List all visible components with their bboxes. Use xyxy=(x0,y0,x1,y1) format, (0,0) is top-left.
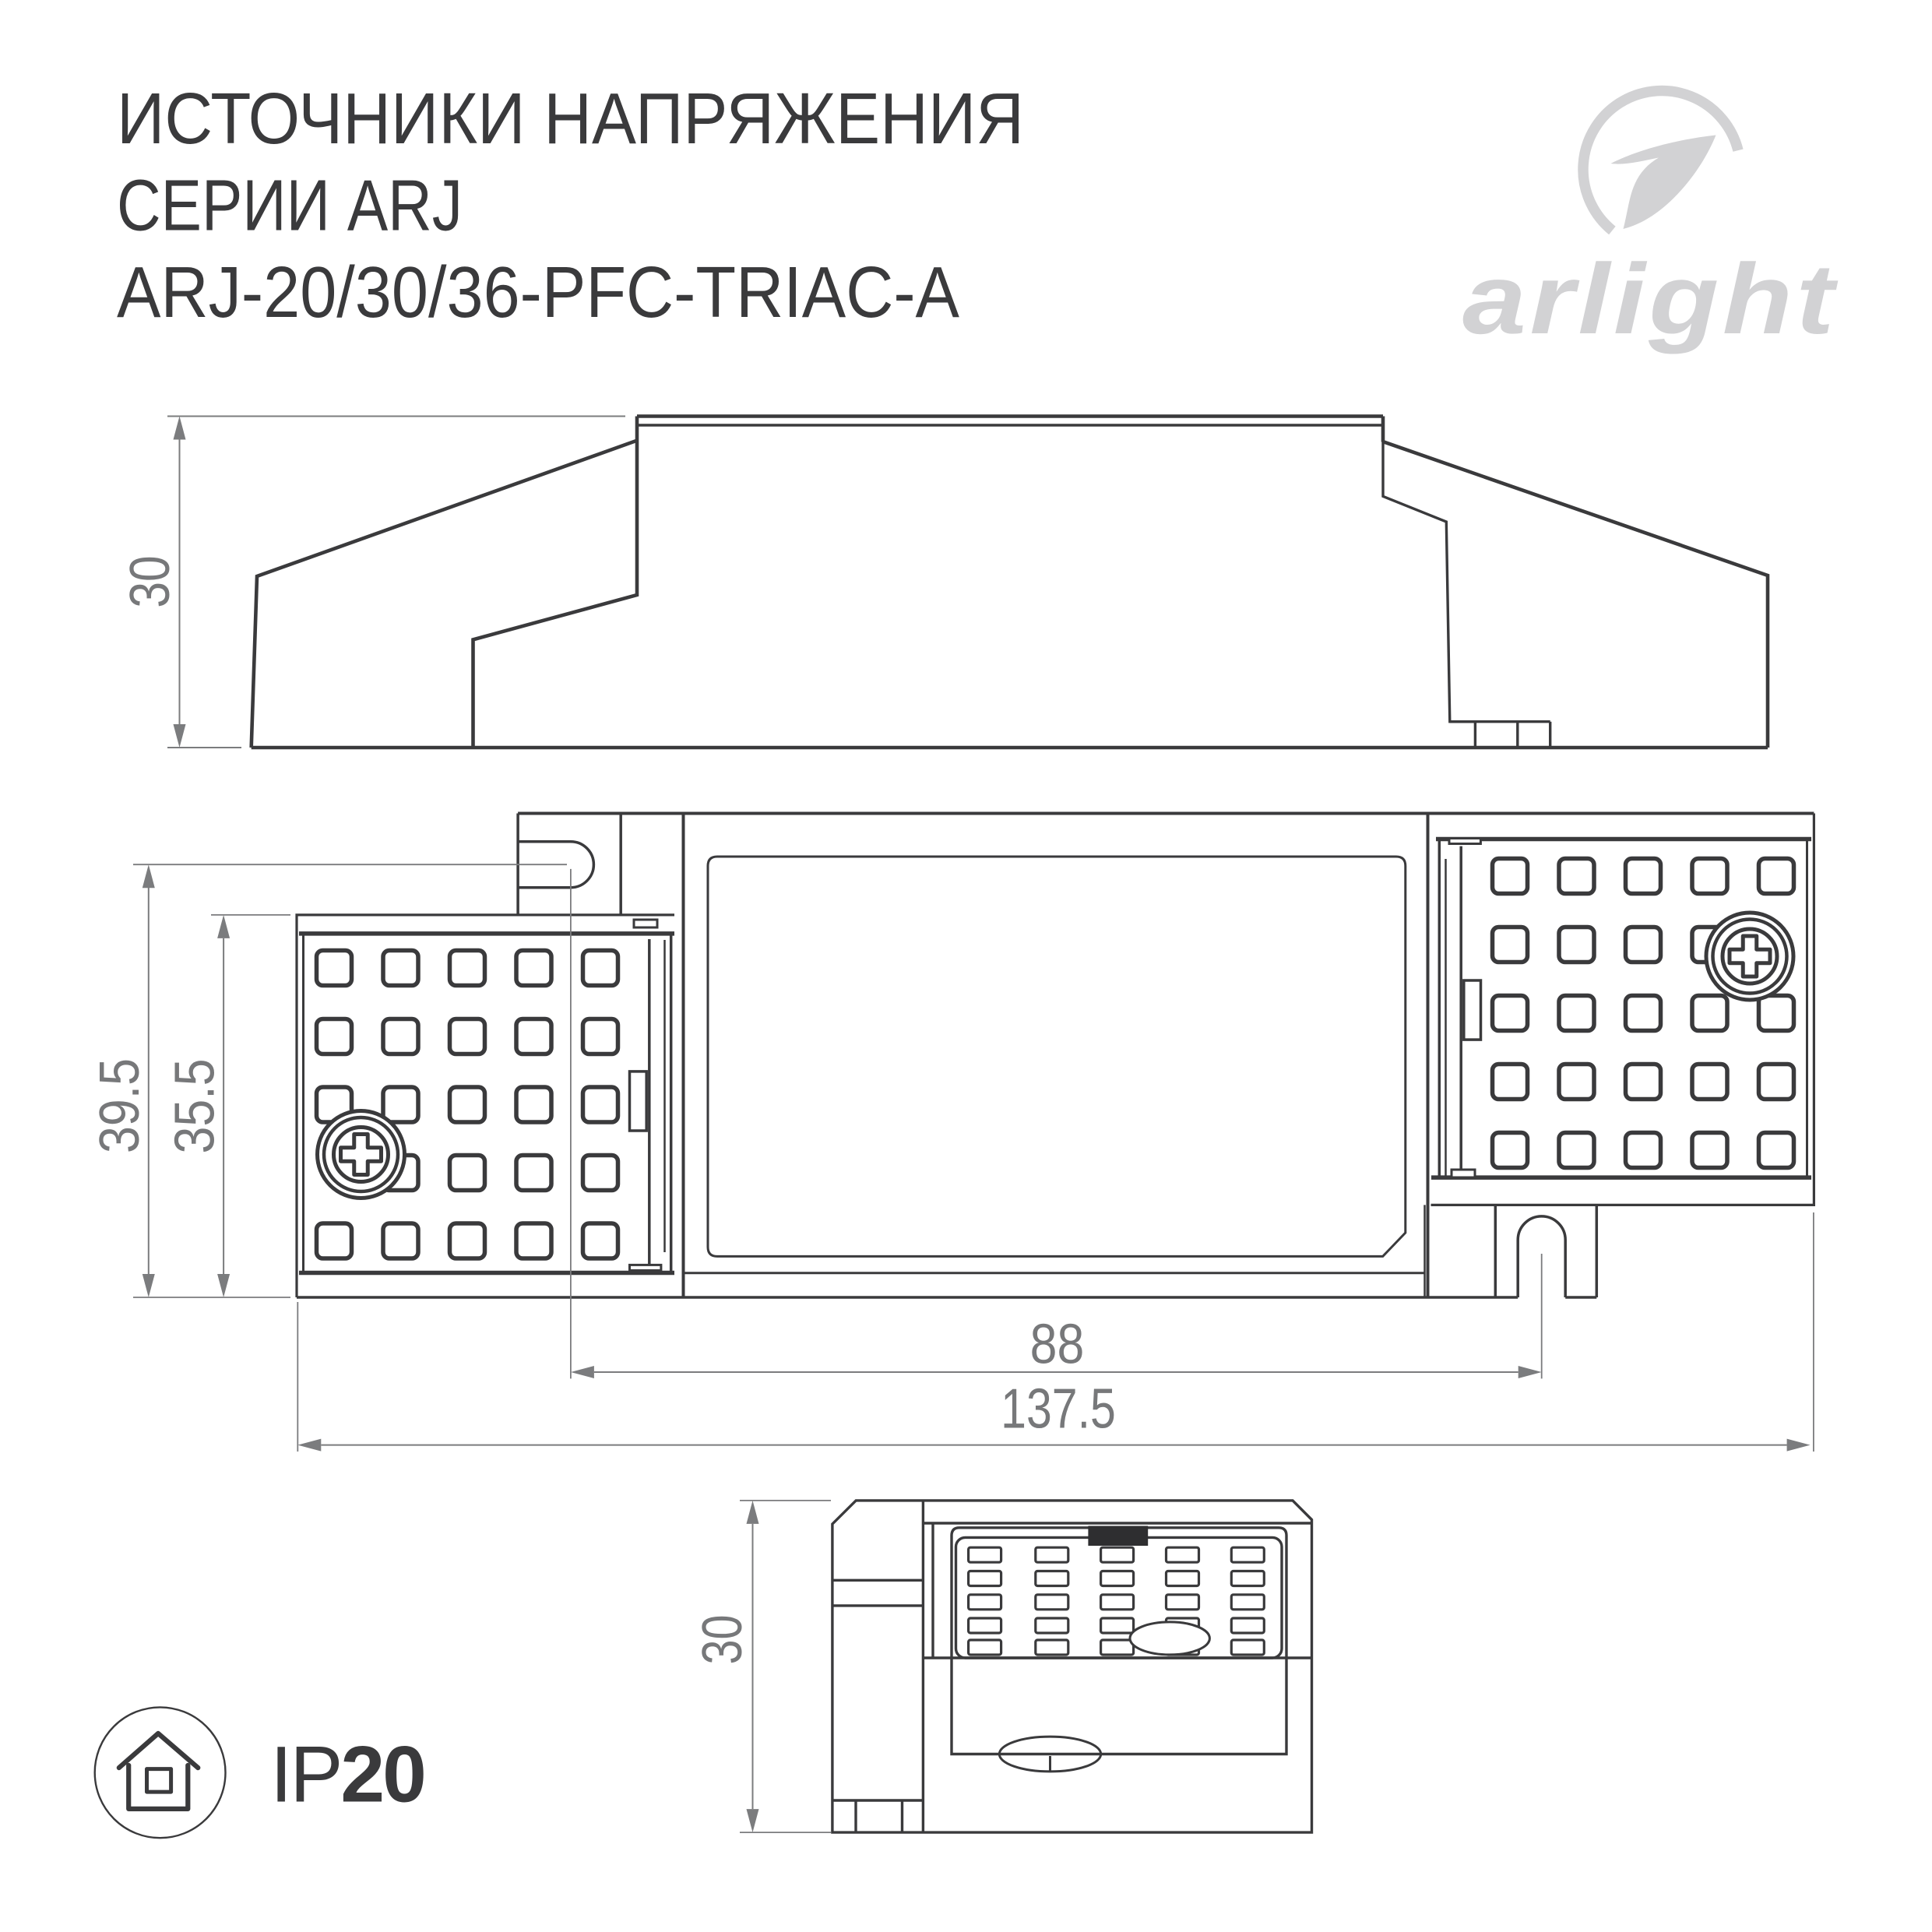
svg-text:30: 30 xyxy=(691,1614,754,1664)
svg-text:arlight: arlight xyxy=(1462,244,1839,355)
svg-text:30: 30 xyxy=(119,555,181,607)
svg-text:СЕРИИ ARJ: СЕРИИ ARJ xyxy=(117,165,463,246)
svg-text:ARJ-20/30/36-PFC-TRIAC-A: ARJ-20/30/36-PFC-TRIAC-A xyxy=(117,252,959,333)
svg-text:35.5: 35.5 xyxy=(164,1059,226,1154)
svg-text:137.5: 137.5 xyxy=(1001,1377,1116,1440)
svg-text:IP20: IP20 xyxy=(270,1730,424,1819)
svg-text:88: 88 xyxy=(1030,1313,1085,1375)
svg-text:39.5: 39.5 xyxy=(89,1058,151,1153)
svg-text:ИСТОЧНИКИ НАПРЯЖЕНИЯ: ИСТОЧНИКИ НАПРЯЖЕНИЯ xyxy=(117,78,1024,159)
